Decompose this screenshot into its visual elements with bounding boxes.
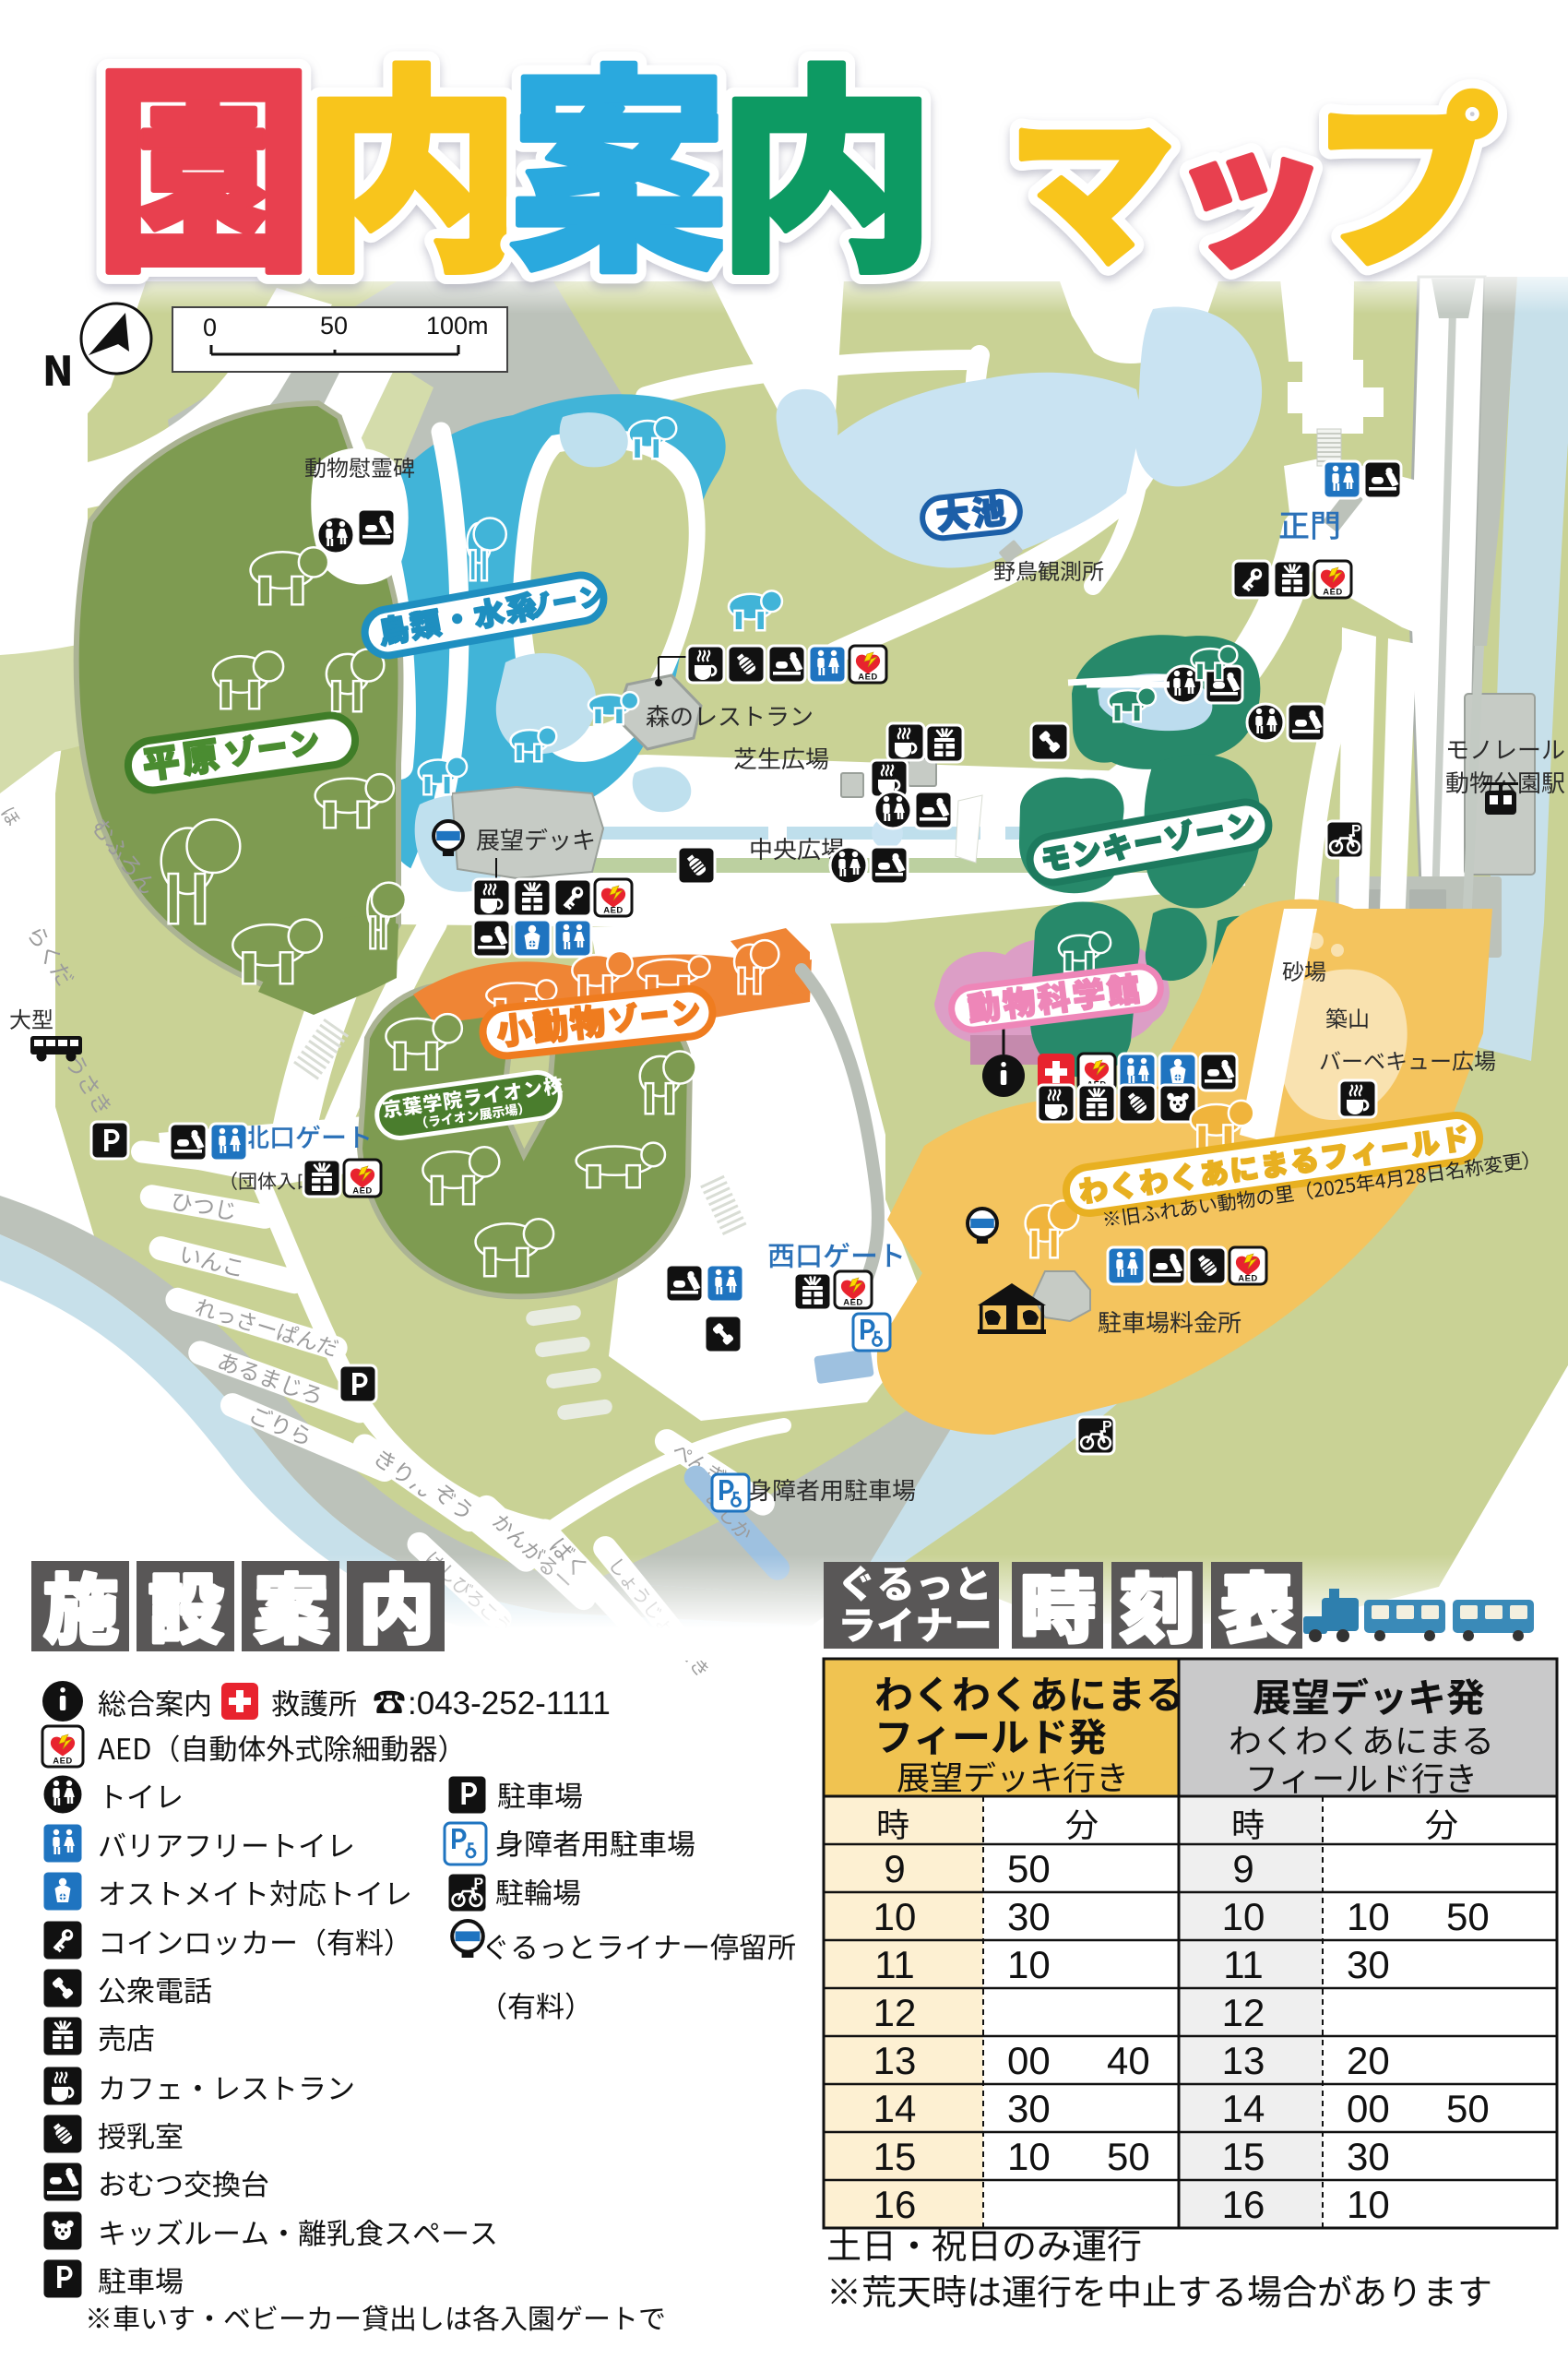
svg-text:30: 30 xyxy=(1007,1895,1051,1938)
svg-text:50: 50 xyxy=(1446,2087,1490,2130)
svg-text:30: 30 xyxy=(1007,2087,1051,2130)
svg-text:AED: AED xyxy=(858,673,878,683)
svg-text:P: P xyxy=(474,1876,484,1892)
svg-text:15: 15 xyxy=(1222,2135,1265,2178)
svg-text:9: 9 xyxy=(884,1847,905,1890)
svg-text:12: 12 xyxy=(1222,1991,1265,2034)
svg-text:16: 16 xyxy=(1222,2183,1265,2226)
svg-text:15: 15 xyxy=(873,2135,917,2178)
svg-text:AED: AED xyxy=(53,1757,73,1767)
svg-text:10: 10 xyxy=(1222,1895,1265,1938)
svg-text:00: 00 xyxy=(1007,2039,1051,2082)
svg-text:AED: AED xyxy=(843,1298,863,1308)
svg-text:P: P xyxy=(1351,823,1361,839)
svg-text:AED: AED xyxy=(1323,588,1343,598)
svg-text:12: 12 xyxy=(873,1991,917,2034)
svg-text:13: 13 xyxy=(873,2039,917,2082)
svg-text:30: 30 xyxy=(1347,2135,1390,2178)
svg-text:10: 10 xyxy=(1347,2183,1390,2226)
svg-text:13: 13 xyxy=(1222,2039,1265,2082)
svg-text:10: 10 xyxy=(1347,1895,1390,1938)
svg-text:10: 10 xyxy=(1007,1943,1051,1986)
svg-text:11: 11 xyxy=(1223,1943,1264,1986)
svg-text:100m: 100m xyxy=(426,312,489,340)
svg-text:40: 40 xyxy=(1107,2039,1150,2082)
svg-text:50: 50 xyxy=(1107,2135,1150,2178)
svg-text:16: 16 xyxy=(873,2183,917,2226)
svg-text:0: 0 xyxy=(203,314,217,341)
svg-text:14: 14 xyxy=(1222,2087,1265,2130)
svg-text:50: 50 xyxy=(1446,1895,1490,1938)
svg-text:P: P xyxy=(1102,1419,1112,1435)
svg-text:AED: AED xyxy=(352,1186,373,1197)
svg-text:50: 50 xyxy=(320,312,348,340)
svg-text:11: 11 xyxy=(874,1943,915,1986)
svg-text:00: 00 xyxy=(1347,2087,1390,2130)
svg-text:20: 20 xyxy=(1347,2039,1390,2082)
svg-text:10: 10 xyxy=(1007,2135,1051,2178)
svg-text:AED: AED xyxy=(603,906,624,916)
svg-text::043-252-1111: :043-252-1111 xyxy=(408,1686,611,1722)
svg-text:9: 9 xyxy=(1232,1847,1253,1890)
svg-text:14: 14 xyxy=(873,2087,917,2130)
svg-text:30: 30 xyxy=(1347,1943,1390,1986)
svg-text:50: 50 xyxy=(1007,1847,1051,1890)
svg-text:AED: AED xyxy=(1238,1274,1258,1284)
svg-text:10: 10 xyxy=(873,1895,917,1938)
